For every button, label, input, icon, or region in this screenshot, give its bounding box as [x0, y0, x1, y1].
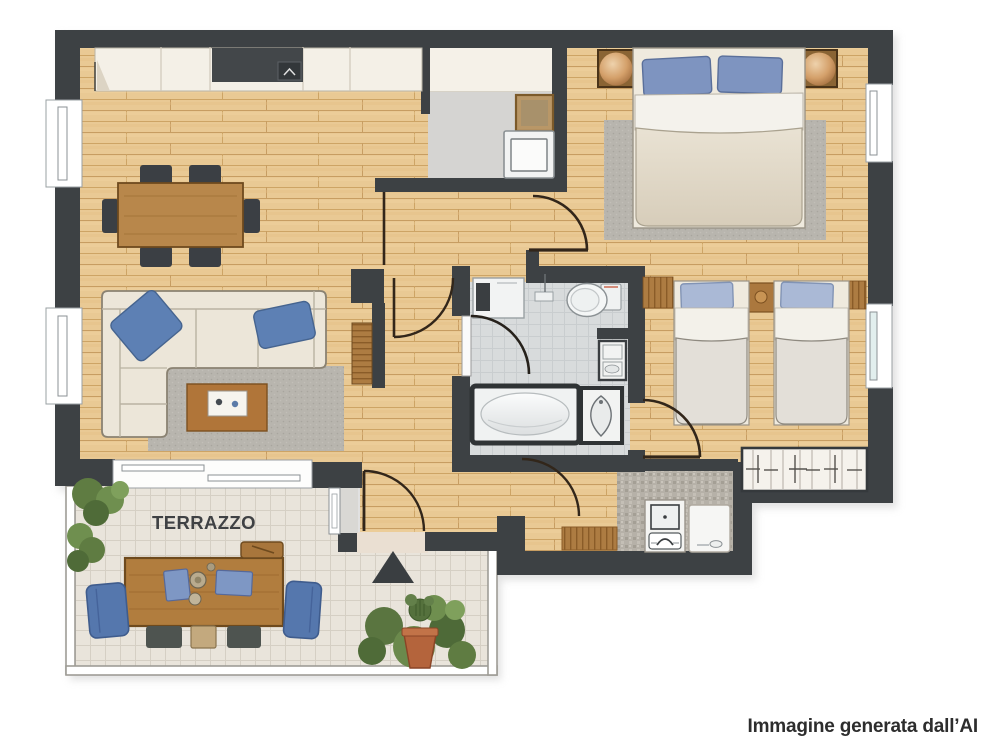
svg-text:TERRAZZO: TERRAZZO: [152, 512, 256, 533]
svg-text:Immagine generata dall’AI: Immagine generata dall’AI: [748, 716, 978, 737]
